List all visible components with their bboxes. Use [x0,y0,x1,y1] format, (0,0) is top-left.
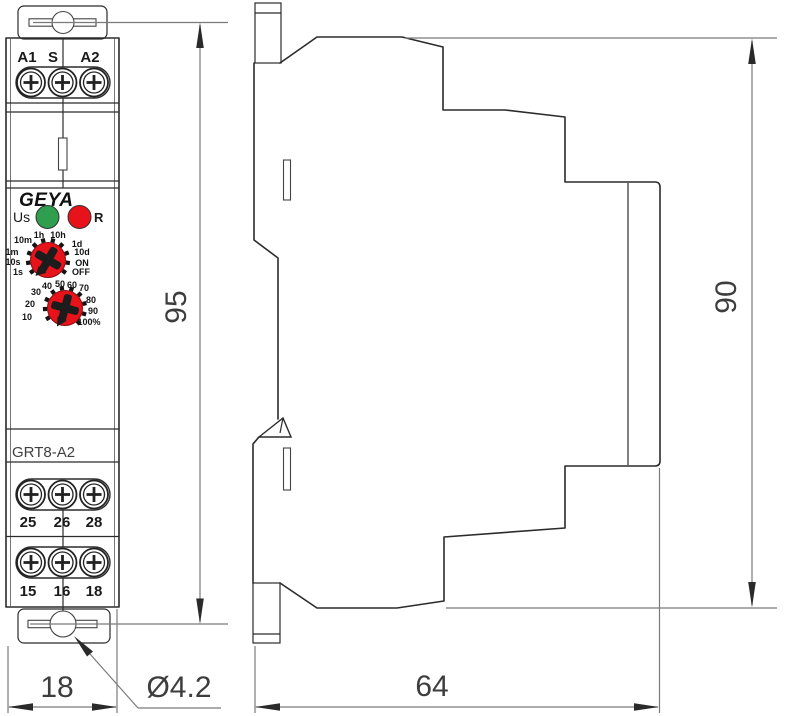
svg-text:1s: 1s [13,267,23,277]
dim-side-height: 90 [405,38,777,608]
bottom-mounting-tab [18,609,110,643]
svg-text:30: 30 [31,287,41,297]
dim-text: Ø4.2 [146,671,211,704]
screw-icon[interactable] [80,69,108,97]
side-left-edge [254,63,278,419]
din-release-clip[interactable] [259,418,291,437]
side-vent-slot [284,160,291,200]
dim-text: 64 [415,670,448,703]
terminal-label: 26 [54,514,71,531]
svg-text:10d: 10d [74,247,90,257]
reset-led-icon [68,206,91,229]
terminal-label: 25 [20,514,37,531]
svg-text:10h: 10h [50,230,66,240]
dim-hole-diameter: Ø4.2 [74,636,221,708]
svg-text:60: 60 [67,280,77,290]
reset-led-label: R [94,210,104,225]
front-view: A1 S A2 GEYA Us R [5,6,119,643]
side-bottom-tab [253,583,280,643]
terminal-label: A1 [17,49,36,66]
svg-text:70: 70 [79,283,89,293]
screw-icon[interactable] [17,481,45,509]
side-left-edge-lower [253,437,259,583]
dimension-drawing: A1 S A2 GEYA Us R [0,0,790,716]
svg-text:10: 10 [22,312,32,322]
screw-icon[interactable] [17,549,45,577]
svg-text:80: 80 [86,295,96,305]
screw-icon[interactable] [49,481,77,509]
power-led-label: Us [13,209,30,225]
svg-text:OFF: OFF [72,267,90,277]
percentage-dial[interactable]: 10 20 30 40 50 60 70 80 90 100% [22,279,101,331]
side-profile [280,37,660,608]
side-top-tab [255,3,281,63]
svg-text:1h: 1h [34,230,45,240]
svg-text:40: 40 [42,281,52,291]
svg-text:20: 20 [25,299,35,309]
power-led-icon [36,206,59,229]
dim-text: 90 [710,280,743,313]
terminal-row-bottom: 15 16 18 [16,547,110,600]
terminal-row-middle: 25 26 28 [16,479,110,531]
svg-text:10s: 10s [5,257,20,267]
screw-icon[interactable] [80,549,108,577]
screw-icon[interactable] [17,69,45,97]
screw-icon[interactable] [49,69,77,97]
dim-text: 95 [160,290,193,323]
svg-text:50: 50 [55,279,65,289]
terminal-label: 28 [86,514,103,531]
time-range-dial[interactable]: 1h 10h 10m 1d 1m 10d 10s ON 1s OFF [5,230,90,284]
terminal-label: 15 [20,583,37,600]
side-view [253,3,660,643]
terminal-label: S [48,49,58,66]
terminal-label: 16 [54,583,71,600]
screw-icon[interactable] [49,549,77,577]
svg-text:90: 90 [88,306,98,316]
technical-drawing: A1 S A2 GEYA Us R [0,0,790,716]
terminal-label: 18 [86,583,103,600]
model-label: GRT8-A2 [12,444,75,461]
dim-text: 18 [40,671,73,704]
terminal-label: A2 [80,49,99,66]
side-vent-slot [284,448,291,490]
svg-text:1m: 1m [5,247,18,257]
screw-icon[interactable] [80,481,108,509]
svg-text:100%: 100% [77,317,100,327]
dim-side-depth: 64 [255,468,660,713]
svg-text:10m: 10m [14,235,32,245]
upper-slot [59,138,68,170]
